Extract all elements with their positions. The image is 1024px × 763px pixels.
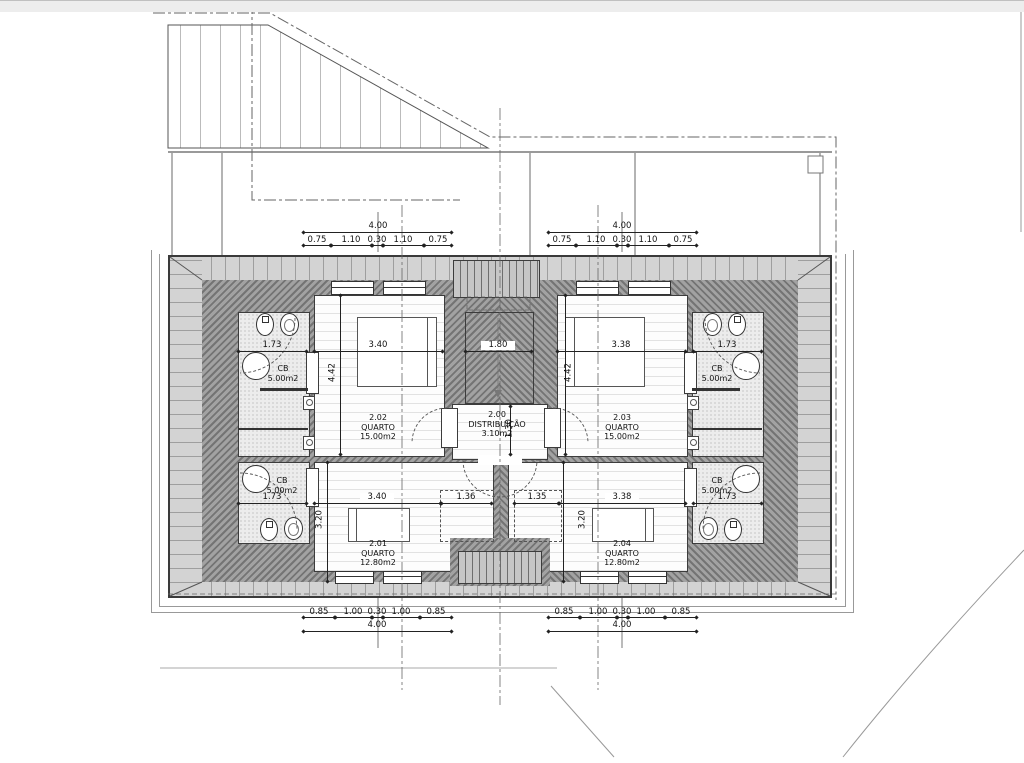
dim-label: 4.00	[360, 621, 394, 630]
dim-line	[580, 617, 617, 618]
dim-label: 1.80	[481, 341, 515, 350]
bath-partition	[260, 388, 308, 391]
bidet-icon	[724, 518, 742, 541]
dim-line	[331, 245, 372, 246]
dim-label: 4.42	[565, 356, 574, 390]
room-bath-upper-left	[238, 312, 310, 457]
wall-box	[808, 156, 823, 173]
roof-band-left	[170, 257, 202, 596]
room-name: QUARTO	[582, 549, 662, 559]
window	[628, 281, 671, 295]
dim-label: 3.38	[605, 493, 639, 502]
room-number: 2.03	[582, 413, 662, 423]
dim-line	[628, 245, 669, 246]
room-name: QUARTO	[338, 423, 418, 433]
dim-line	[465, 351, 532, 352]
window	[580, 571, 619, 584]
room-label-cb: CB 5.00m2	[689, 476, 745, 495]
room-label-2-04: 2.04 QUARTO 12.80m2	[582, 539, 662, 568]
dim-line	[238, 351, 307, 352]
room-number: 2.01	[338, 539, 418, 549]
dim-line	[327, 462, 328, 582]
room-number: 2.02	[338, 413, 418, 423]
dim-line	[424, 245, 452, 246]
dim-label: 4.42	[329, 356, 338, 390]
bath-partition	[238, 428, 308, 430]
vent-band-bottom	[458, 551, 542, 584]
room-area: 3.10m2	[457, 429, 537, 439]
room-name: CB	[254, 476, 310, 486]
dim-label: 4.00	[605, 222, 639, 231]
dim-line	[238, 503, 307, 504]
dim-line	[314, 351, 443, 352]
dim-line	[383, 617, 420, 618]
dim-label: 0.75	[666, 236, 700, 245]
dim-line	[303, 232, 452, 233]
dim-label: 1.35	[520, 493, 554, 502]
parcel-arc	[843, 550, 1024, 757]
room-label-2-02: 2.02 QUARTO 15.00m2	[338, 413, 418, 442]
parcel-diagonal	[551, 686, 614, 757]
room-area: 15.00m2	[582, 432, 662, 442]
bottom-band	[0, 0, 1024, 12]
room-label-2-03: 2.03 QUARTO 15.00m2	[582, 413, 662, 442]
dim-label: 1.10	[386, 236, 420, 245]
window	[383, 281, 426, 295]
dim-line	[548, 245, 576, 246]
wall-fixture	[303, 396, 315, 410]
dim-label: 0.75	[545, 236, 579, 245]
dim-line	[576, 245, 617, 246]
toilet-icon	[703, 313, 722, 336]
dim-line	[669, 245, 697, 246]
room-area: 12.80m2	[582, 558, 662, 568]
window	[335, 571, 374, 584]
dim-line	[303, 631, 452, 632]
room-name: CB	[689, 364, 745, 374]
room-name: QUARTO	[338, 549, 418, 559]
dim-line	[665, 617, 697, 618]
roof-band-right	[798, 257, 830, 596]
dim-label: 0.85	[302, 608, 336, 617]
door-opening	[544, 408, 561, 448]
dim-label: 0.75	[300, 236, 334, 245]
window	[331, 281, 374, 295]
room-area: 5.00m2	[689, 486, 745, 496]
dim-line	[693, 503, 762, 504]
dim-label: 0.75	[421, 236, 455, 245]
dim-label: 1.10	[631, 236, 665, 245]
dim-label: 3.20	[316, 503, 325, 537]
toilet-icon	[699, 517, 718, 540]
dim-label: 4.00	[605, 621, 639, 630]
dim-line	[335, 617, 372, 618]
toilet-icon	[284, 517, 303, 540]
vent-band-top	[453, 260, 540, 298]
room-label-cb: CB 5.00m2	[255, 364, 311, 383]
room-area: 5.00m2	[689, 374, 745, 384]
dim-label: 0.85	[547, 608, 581, 617]
room-name: QUARTO	[582, 423, 662, 433]
room-label-cb: CB 5.00m2	[689, 364, 745, 383]
dim-line	[548, 631, 697, 632]
room-label-cb: CB 5.00m2	[254, 476, 310, 495]
wall-fixture	[303, 436, 315, 450]
dim-line	[548, 232, 697, 233]
room-area: 15.00m2	[338, 432, 418, 442]
room-name: CB	[689, 476, 745, 486]
room-number: 2.00	[457, 410, 537, 420]
door-opening	[478, 455, 522, 465]
bidet-icon	[256, 313, 274, 336]
room-area: 5.00m2	[254, 486, 310, 496]
room-number: 2.04	[582, 539, 662, 549]
bath-partition	[692, 428, 762, 430]
room-bath-upper-right	[692, 312, 764, 457]
dim-line	[693, 351, 762, 352]
toilet-icon	[280, 313, 299, 336]
bed	[357, 317, 437, 387]
dim-line	[548, 617, 580, 618]
dim-label: 1.36	[449, 493, 483, 502]
stairwell	[465, 312, 534, 404]
wall-fixture	[687, 436, 699, 450]
dim-line	[514, 503, 560, 504]
room-area: 12.80m2	[338, 558, 418, 568]
dim-label: 0.85	[419, 608, 453, 617]
dim-line	[628, 617, 665, 618]
bath-partition	[692, 388, 740, 391]
dim-label: 3.40	[361, 341, 395, 350]
bidet-icon	[728, 313, 746, 336]
dim-label: 1.00	[629, 608, 663, 617]
floor-plan-canvas: 4.00 0.75 1.10 0.30 1.10 0.75 4.00 0.75 …	[0, 0, 1024, 763]
dim-line	[563, 462, 564, 582]
room-label-2-01: 2.01 QUARTO 12.80m2	[338, 539, 418, 568]
dim-label: 0.85	[664, 608, 698, 617]
dim-line	[383, 245, 424, 246]
room-label-2-00: 2.00 DISTRIBUIÇÃO 3.10m2	[457, 410, 537, 439]
dim-label: 3.40	[360, 493, 394, 502]
window	[576, 281, 619, 295]
dim-label: 3.38	[604, 341, 638, 350]
window	[628, 571, 667, 584]
dim-line	[303, 245, 331, 246]
room-name: DISTRIBUIÇÃO	[457, 420, 537, 430]
dim-line	[558, 503, 686, 504]
dim-line	[420, 617, 452, 618]
window	[383, 571, 422, 584]
dim-line	[303, 617, 335, 618]
bidet-icon	[260, 518, 278, 541]
door-opening	[441, 408, 458, 448]
dim-line	[440, 503, 492, 504]
room-name: CB	[255, 364, 311, 374]
room-area: 5.00m2	[255, 374, 311, 384]
bed	[565, 317, 645, 387]
bed	[592, 508, 654, 542]
bed	[348, 508, 410, 542]
dim-label: 4.00	[361, 222, 395, 231]
dim-line	[314, 503, 442, 504]
dim-label: 3.20	[579, 503, 588, 537]
exterior-stair	[168, 25, 488, 148]
wall-fixture	[687, 396, 699, 410]
dim-line	[557, 351, 686, 352]
dim-label: 1.73	[255, 341, 289, 350]
dim-label: 1.00	[384, 608, 418, 617]
dim-label: 1.73	[710, 341, 744, 350]
